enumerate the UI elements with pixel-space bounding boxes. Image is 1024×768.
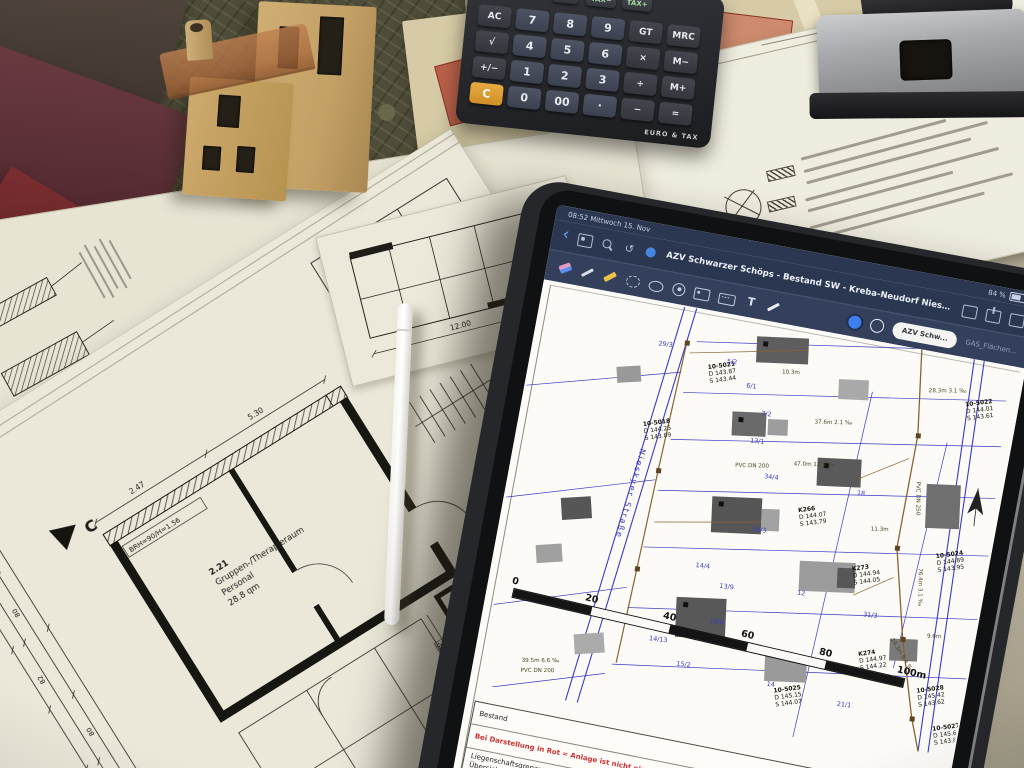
calc-top-keys: TAX− TAX+ [586, 0, 653, 12]
calc-key-8[interactable]: 8 [553, 12, 588, 36]
desk-photo: V [0, 0, 1024, 768]
undo-icon[interactable]: ↺ [622, 242, 637, 255]
calc-key-sqrt[interactable]: √ [474, 30, 509, 54]
document-tab-inactive[interactable]: GAS_Flächen... [965, 338, 1018, 355]
svg-text:34/3: 34/3 [752, 525, 767, 535]
svg-text:76.4m 3.1 ‰: 76.4m 3.1 ‰ [916, 568, 922, 606]
svg-text:13/9: 13/9 [719, 582, 734, 592]
miniature-house [168, 2, 378, 202]
active-color-swatch[interactable] [848, 314, 863, 329]
north-arrow-icon [966, 488, 986, 528]
calc-key-5[interactable]: 5 [550, 38, 585, 62]
layers-icon[interactable] [1008, 312, 1024, 328]
calc-key-6[interactable]: 6 [588, 42, 623, 66]
calc-key-mminus[interactable]: M− [663, 50, 698, 74]
calc-key-9[interactable]: 9 [590, 16, 625, 40]
house-window [202, 146, 222, 171]
svg-text:29/3: 29/3 [658, 339, 673, 349]
svg-text:10.3m: 10.3m [782, 370, 800, 376]
svg-text:PVC DN 200: PVC DN 200 [735, 463, 769, 470]
calc-key-divide[interactable]: ÷ [623, 72, 658, 96]
keyboard-icon[interactable] [718, 292, 737, 306]
calc-key-mrc[interactable]: MRC [666, 24, 701, 48]
battery-percent: 84 % [988, 288, 1007, 299]
calc-key-4[interactable]: 4 [512, 34, 547, 58]
house-window [217, 95, 241, 128]
svg-text:PVC DN 250: PVC DN 250 [914, 481, 920, 515]
calc-key-7[interactable]: 7 [515, 8, 550, 32]
svg-text:14/13: 14/13 [649, 634, 668, 644]
battery-icon [1009, 292, 1024, 304]
svg-text:47.0m 12.3 ‰: 47.0m 12.3 ‰ [794, 461, 836, 468]
calc-key-multiply[interactable]: × [625, 46, 660, 70]
svg-text:14/4: 14/4 [695, 561, 710, 571]
calc-key-ac[interactable]: AC [477, 4, 512, 28]
cadastral-map: 10-5018D 144.25S 143.09 10-5021D 143.87S… [471, 280, 1024, 768]
calc-key-c[interactable]: C [469, 82, 504, 106]
hole-punch: V [809, 0, 1024, 144]
calculator-brand: EURO & TAX [644, 128, 699, 142]
svg-text:18: 18 [856, 489, 865, 498]
house-window [236, 146, 256, 173]
calc-key-2[interactable]: 2 [547, 64, 582, 88]
calc-key-00[interactable]: 00 [544, 90, 579, 114]
eraser-icon[interactable] [557, 260, 573, 276]
small-plan-wall [349, 242, 393, 259]
calc-key-plusminus[interactable]: +/− [472, 56, 507, 80]
svg-text:14/8: 14/8 [709, 617, 724, 627]
house-window [317, 16, 344, 75]
legend-hatch-swatch [766, 165, 796, 182]
insert-image-icon[interactable] [693, 287, 711, 302]
tablet-screen[interactable]: 08:52 Mittwoch 15. Nov 84 % ‹ ↺ AZV Schw… [445, 205, 1024, 768]
thumbnails-icon[interactable] [577, 232, 594, 248]
calc-keypad: AC 7 8 9 GT MRC √ 4 5 6 × M− +/− 1 2 3 ÷… [469, 4, 701, 126]
house-front-block [182, 77, 294, 202]
white-color-swatch[interactable] [869, 318, 885, 334]
svg-text:15/2: 15/2 [676, 659, 691, 669]
toolbar-spacer [790, 310, 840, 319]
svg-text:31/3: 31/3 [863, 610, 878, 620]
calc-key-dot[interactable]: · [582, 94, 617, 118]
legend-hatch-swatch [767, 196, 797, 213]
svg-text:39.5m 6.6 ‰: 39.5m 6.6 ‰ [522, 658, 560, 664]
svg-text:21/1: 21/1 [836, 700, 851, 710]
text-tool-icon[interactable]: T [743, 294, 759, 310]
calc-key-mplus[interactable]: M+ [661, 76, 696, 100]
lasso-icon[interactable] [625, 274, 641, 288]
calc-key-3[interactable]: 3 [585, 68, 620, 92]
svg-text:9.6m: 9.6m [927, 634, 942, 640]
svg-text:13/1: 13/1 [750, 436, 765, 446]
search-icon[interactable] [600, 238, 615, 251]
share-icon[interactable] [985, 308, 1002, 324]
calc-key-minus[interactable]: − [620, 98, 655, 122]
svg-text:12: 12 [797, 589, 806, 598]
house-chimney [185, 19, 214, 61]
highlighter-icon[interactable] [602, 268, 618, 284]
markup-icon[interactable] [644, 246, 659, 259]
calc-key-tax-plus[interactable]: TAX+ [622, 0, 653, 12]
svg-text:28.3m 3.1 ‰: 28.3m 3.1 ‰ [929, 388, 967, 394]
calc-key-tax-minus[interactable]: TAX− [586, 0, 617, 8]
svg-text:6/1: 6/1 [746, 382, 757, 391]
pencil-tool-icon[interactable] [580, 264, 596, 280]
target-icon[interactable] [671, 282, 686, 297]
svg-text:7/2: 7/2 [761, 409, 772, 418]
svg-text:11.3m: 11.3m [871, 527, 889, 533]
svg-text:5/2: 5/2 [727, 357, 738, 366]
svg-text:37.6m 2.1 ‰: 37.6m 2.1 ‰ [814, 420, 852, 427]
manhole-labels: 10-5018D 144.25S 143.09 10-5021D 143.87S… [610, 351, 1003, 750]
svg-text:34/4: 34/4 [764, 472, 779, 482]
svg-text:14: 14 [766, 680, 775, 689]
bookmark-icon[interactable] [961, 304, 978, 320]
calc-key-equals[interactable]: = [658, 102, 693, 126]
calc-key-1[interactable]: 1 [509, 60, 544, 84]
punch-slot [899, 39, 952, 81]
shape-oval-icon[interactable] [648, 279, 665, 293]
calc-key-percent[interactable]: % [552, 0, 579, 4]
back-button[interactable]: ‹ [561, 226, 571, 244]
calc-key-gt[interactable]: GT [628, 20, 663, 44]
calc-key-0[interactable]: 0 [507, 86, 542, 110]
map-canvas[interactable]: 10-5018D 144.25S 143.09 10-5021D 143.87S… [445, 279, 1024, 768]
svg-text:PVC DN 200: PVC DN 200 [520, 668, 554, 674]
punch-base [809, 91, 1024, 119]
pen-tool-icon[interactable] [766, 299, 782, 315]
